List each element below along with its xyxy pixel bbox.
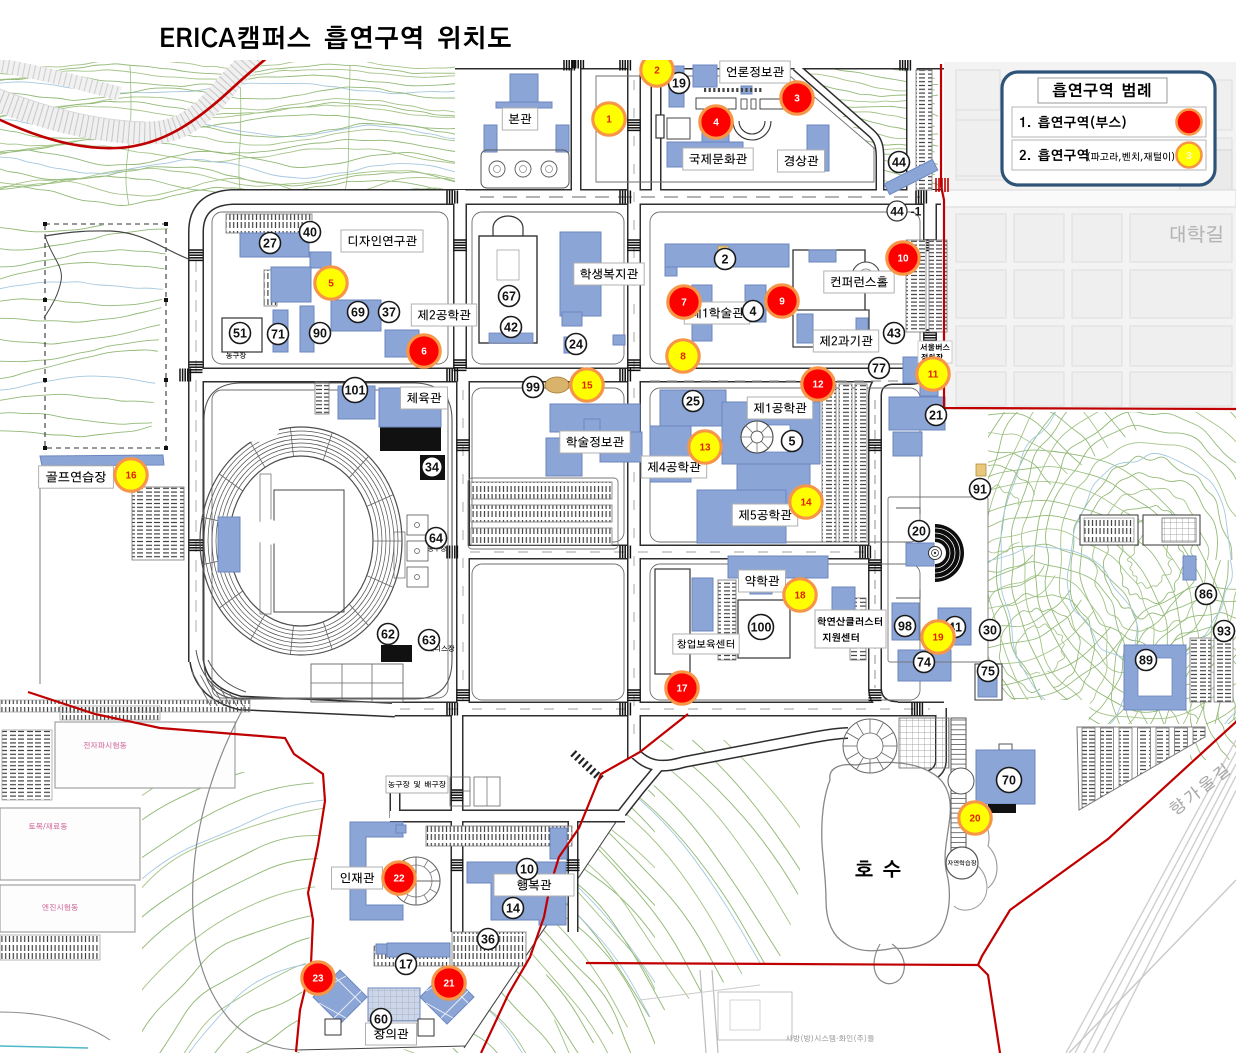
svg-text:42: 42 [504,321,518,335]
svg-text:14: 14 [800,498,812,509]
svg-text:20: 20 [969,814,981,825]
svg-text:3: 3 [794,94,800,105]
svg-text:63: 63 [422,634,436,648]
svg-text:36: 36 [481,933,495,947]
svg-text:9: 9 [779,297,785,308]
svg-text:62: 62 [381,628,395,642]
svg-text:12: 12 [812,380,824,391]
svg-text:16: 16 [125,471,137,482]
svg-text:37: 37 [382,306,396,320]
svg-text:23: 23 [312,974,324,985]
svg-text:77: 77 [872,362,886,376]
svg-text:44: 44 [892,156,906,170]
svg-text:27: 27 [263,237,277,251]
svg-text:3: 3 [1186,151,1192,162]
svg-text:13: 13 [699,443,711,454]
svg-text:34: 34 [425,461,439,475]
svg-text:17: 17 [399,958,413,972]
svg-text:91: 91 [973,483,987,497]
svg-text:93: 93 [1217,625,1231,639]
svg-text:21: 21 [929,409,943,423]
svg-text:-1: -1 [911,205,922,219]
svg-text:4: 4 [750,305,757,319]
svg-text:100: 100 [751,621,772,635]
svg-text:98: 98 [898,620,912,634]
svg-text:44: 44 [890,205,904,219]
svg-text:10: 10 [520,863,534,877]
svg-text:4: 4 [713,118,719,129]
svg-text:74: 74 [917,656,931,670]
svg-text:24: 24 [569,338,583,352]
svg-text:7: 7 [681,298,687,309]
svg-text:8: 8 [680,352,686,363]
svg-text:11: 11 [928,370,939,381]
svg-text:64: 64 [429,532,443,546]
svg-text:89: 89 [1139,654,1153,668]
svg-text:101: 101 [345,384,366,398]
svg-text:19: 19 [932,633,944,644]
svg-text:18: 18 [794,591,806,602]
svg-text:21: 21 [443,979,455,990]
svg-text:75: 75 [981,665,995,679]
svg-text:99: 99 [526,381,540,395]
svg-text:5: 5 [328,279,334,290]
svg-text:5: 5 [789,435,796,449]
svg-text:43: 43 [887,327,901,341]
svg-text:6: 6 [421,347,427,358]
svg-text:86: 86 [1199,588,1213,602]
svg-text:51: 51 [233,327,247,341]
svg-text:30: 30 [983,624,997,638]
svg-text:67: 67 [502,290,516,304]
svg-text:22: 22 [393,874,405,885]
svg-text:25: 25 [686,395,700,409]
svg-text:2: 2 [654,66,660,77]
svg-text:40: 40 [303,226,317,240]
svg-text:20: 20 [912,525,926,539]
svg-text:71: 71 [271,328,285,342]
svg-text:14: 14 [506,902,520,916]
svg-text:17: 17 [676,684,688,695]
svg-text:19: 19 [672,77,686,91]
svg-text:90: 90 [313,327,327,341]
svg-text:69: 69 [351,306,365,320]
svg-text:60: 60 [374,1013,388,1027]
svg-text:70: 70 [1002,774,1016,788]
svg-text:2: 2 [722,253,729,267]
svg-text:1: 1 [606,115,612,126]
svg-text:15: 15 [581,381,593,392]
svg-text:10: 10 [897,254,909,265]
